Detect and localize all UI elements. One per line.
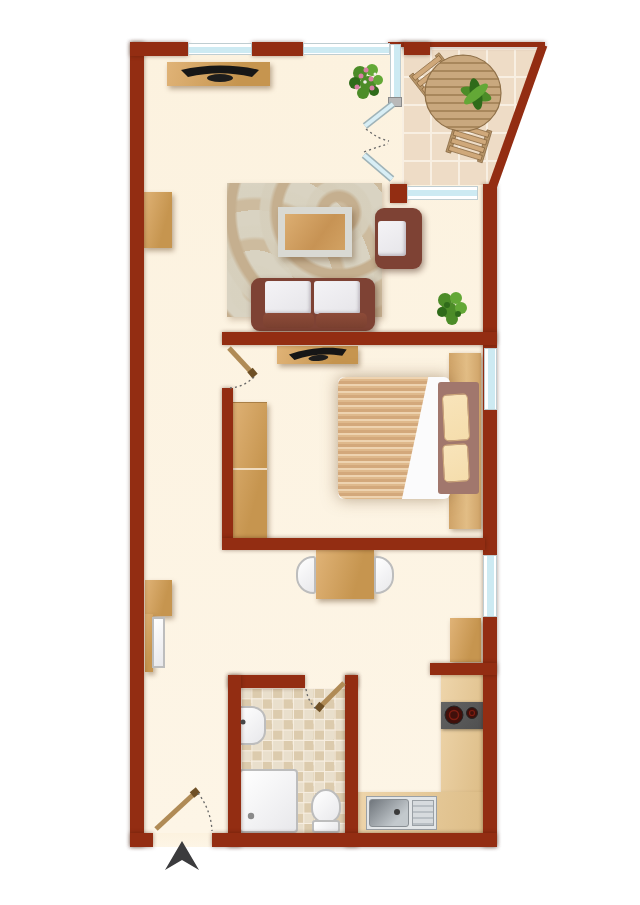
vector-overlay <box>0 0 640 905</box>
entrance-arrow <box>165 841 199 870</box>
french-door-lower <box>364 144 392 179</box>
french-door-lower-swing <box>364 144 388 152</box>
entrance-door-swing <box>198 793 212 831</box>
french-door-upper-swing <box>366 129 389 141</box>
bedroom-door-swing <box>230 377 254 388</box>
living-flowering-plant <box>349 64 383 99</box>
entrance-door <box>156 790 212 831</box>
kitchen-faucet <box>394 809 400 815</box>
bedroom-door <box>229 348 255 388</box>
living-tv <box>181 66 259 83</box>
living-potted-plant <box>437 292 467 325</box>
shower-drain <box>248 813 254 819</box>
floor-plan <box>0 0 640 905</box>
wall-balcony-diagonal <box>492 45 543 188</box>
french-door-upper <box>365 104 393 141</box>
bathroom-door <box>306 683 344 710</box>
bedroom-tv <box>289 346 348 364</box>
washbasin-faucet <box>241 720 246 725</box>
cooktop-burners <box>445 706 478 724</box>
